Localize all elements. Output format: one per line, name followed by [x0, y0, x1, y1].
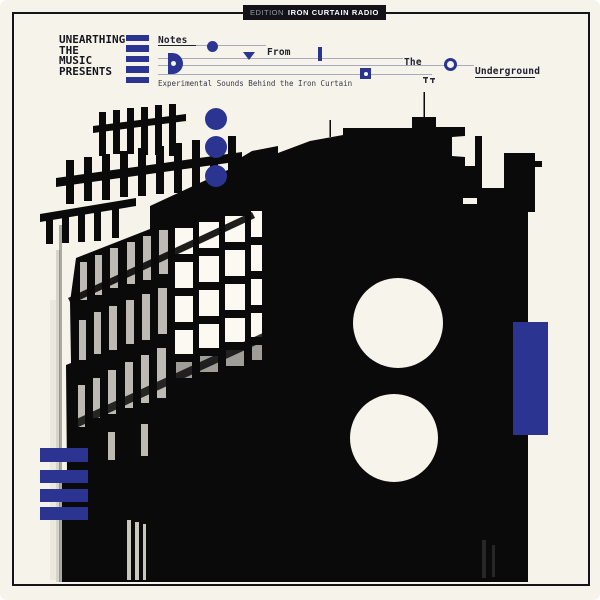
- stripe-block-top: [126, 66, 149, 73]
- subtitle: Experimental Sounds Behind the Iron Curt…: [158, 80, 352, 88]
- title-word-from: From: [267, 48, 291, 58]
- note-dot-icon: [207, 41, 218, 52]
- stripe-block-bottom: [40, 470, 88, 483]
- stripe-block-bottom: [40, 448, 88, 462]
- blue-dot-3: [205, 165, 227, 187]
- album-cover: UNEARTHING THE MUSIC PRESENTS Notes From…: [0, 0, 600, 600]
- blue-dot-2: [205, 136, 227, 158]
- stripe-block-top: [126, 35, 149, 42]
- title-word-underground: Underground: [475, 67, 540, 77]
- presenter-line-4: PRESENTS: [59, 67, 112, 78]
- ring-note-icon: [444, 58, 457, 71]
- title-word-the: The: [404, 58, 422, 68]
- title-word-notes: Notes: [158, 36, 188, 46]
- badge-label: IRON CURTAIN RADIO: [288, 8, 379, 17]
- square-note-icon: [360, 68, 371, 79]
- blue-accent-rectangle: [513, 322, 548, 435]
- cream-circle-bottom: [350, 394, 438, 482]
- cream-circle-top: [353, 278, 443, 368]
- triangle-note-icon: [243, 52, 255, 60]
- stripe-block-bottom: [40, 489, 88, 502]
- building-photo: [0, 0, 600, 600]
- stripe-block-top: [126, 56, 149, 63]
- stripe-block-top: [126, 45, 149, 52]
- bar-note-icon: [318, 47, 322, 61]
- blue-dot-1: [205, 108, 227, 130]
- stripe-block-top: [126, 77, 149, 84]
- stripe-block-bottom: [40, 507, 88, 520]
- edition-badge: EDITION IRON CURTAIN RADIO: [243, 5, 386, 20]
- badge-prefix: EDITION: [250, 8, 284, 17]
